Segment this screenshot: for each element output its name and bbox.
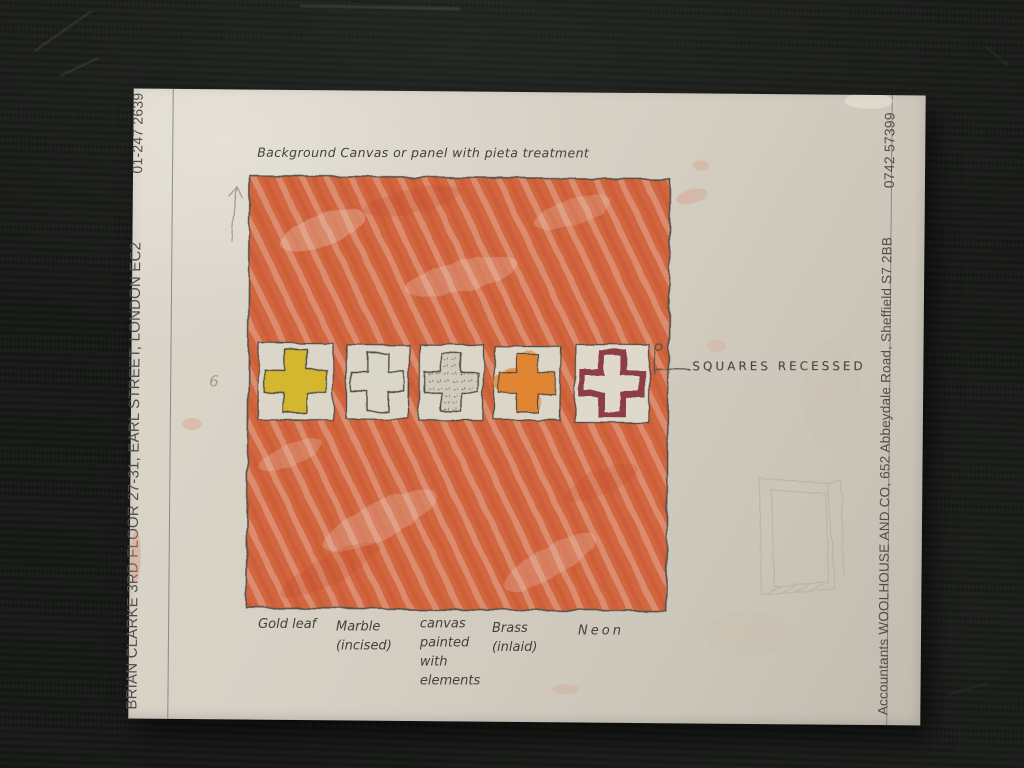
label-brass-inlaid: Brass (inlaid) <box>492 620 537 658</box>
paper-stains <box>703 92 893 658</box>
letterhead-paper: 01-247 2639 BRIAN CLARKE 3RD FLOOR 27-31… <box>128 89 925 726</box>
label-neon: Neon <box>578 623 624 642</box>
label-canvas-painted: canvas painted with elements <box>420 615 480 690</box>
pencil-frame-sketch <box>758 478 844 596</box>
felt-scratch <box>300 5 460 11</box>
felt-scratch <box>948 683 987 695</box>
felt-scratch <box>985 46 1009 67</box>
squares-recessed-annotation: SQUARES RECESSED <box>692 359 865 373</box>
felt-scratch <box>60 57 99 77</box>
label-marble-incised: Marble (incised) <box>336 619 392 657</box>
label-gold-leaf: Gold leaf <box>258 616 316 635</box>
sketch-title-handwriting: Background Canvas or panel with pieta tr… <box>257 145 589 161</box>
felt-scratch <box>34 10 92 52</box>
pencil-arrow <box>229 186 242 241</box>
photo-of-letterhead-sketch: 01-247 2639 BRIAN CLARKE 3RD FLOOR 27-31… <box>0 0 1024 768</box>
pencil-numeral-six: 6 <box>209 372 219 390</box>
